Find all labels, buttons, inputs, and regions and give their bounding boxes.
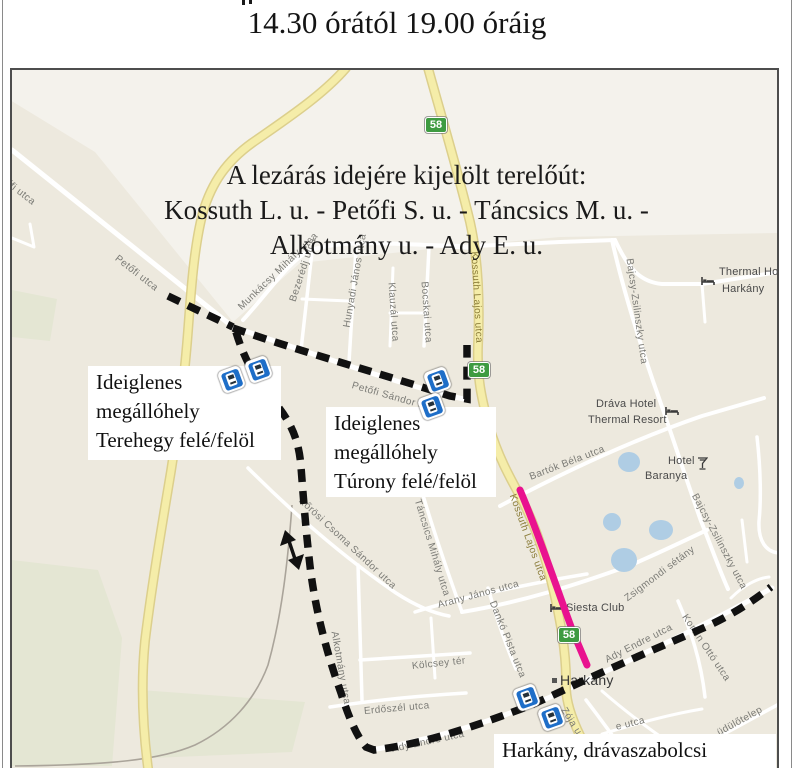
- temporary-stop-callout: Harkány, drávaszabolcsi: [494, 734, 776, 768]
- map-title-line: A lezárás idejére kijelölt terelőút:: [24, 158, 779, 193]
- callout-line: Terehegy felé/felöl: [96, 426, 273, 455]
- two-way-arrow: [280, 530, 304, 570]
- callout-line: Ideiglenes: [334, 409, 488, 438]
- route-58-badge: 58: [425, 117, 447, 133]
- callout-line: megállóhely: [334, 438, 488, 467]
- route-58-badge: 58: [558, 627, 580, 643]
- map-title-line: Alkotmány u. - Ady E. u.: [24, 228, 779, 263]
- callout-line: Túrony felé/felöl: [334, 467, 488, 496]
- map-title-line: Kossuth L. u. - Petőfi S. u. - Táncsics …: [24, 193, 779, 228]
- cut-off-text-fragment: [249, 0, 252, 4]
- map-title: A lezárás idejére kijelölt terelőút: Kos…: [24, 158, 779, 263]
- temporary-stop-callout: IdeiglenesmegállóhelyTúrony felé/felöl: [326, 407, 496, 497]
- callout-line: Harkány, drávaszabolcsi: [502, 736, 768, 765]
- callout-line: megállóhely: [96, 397, 273, 426]
- flyer-page: { "header": { "time_range": "14.30 órátó…: [0, 0, 794, 768]
- route-58-badge: 58: [468, 362, 490, 378]
- header-time-range: 14.30 órától 19.00 óráig: [0, 5, 794, 41]
- page-border-right: [791, 0, 792, 768]
- page-border-left: [2, 0, 3, 768]
- detour-map: őfi utcaPetőfi utcaMunkácsy Mihály utcaB…: [10, 68, 779, 768]
